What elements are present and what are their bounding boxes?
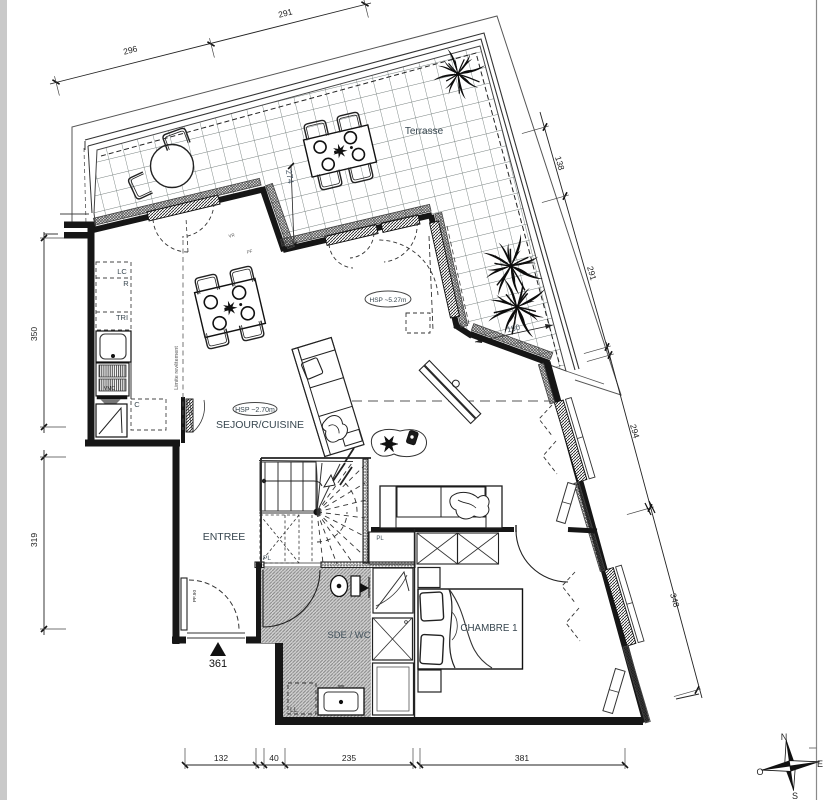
svg-text:319: 319: [29, 533, 39, 547]
svg-text:361: 361: [209, 658, 227, 670]
svg-text:Limite revêtement: Limite revêtement: [174, 346, 180, 390]
svg-text:VMC: VMC: [104, 386, 116, 392]
svg-text:LC: LC: [117, 267, 127, 276]
svg-text:PL: PL: [263, 555, 271, 562]
svg-text:Terrasse: Terrasse: [405, 126, 444, 137]
svg-text:PL: PL: [376, 536, 384, 542]
svg-text:132: 132: [214, 753, 228, 763]
svg-text:E: E: [817, 759, 823, 769]
svg-text:235: 235: [342, 753, 356, 763]
svg-text:ENTREE: ENTREE: [203, 531, 246, 543]
svg-text:O: O: [756, 767, 763, 777]
svg-text:R: R: [123, 279, 129, 288]
svg-text:HSP ~2.70m: HSP ~2.70m: [235, 407, 275, 414]
svg-text:HSP ~5.27m: HSP ~5.27m: [370, 297, 407, 304]
svg-text:TRI: TRI: [116, 313, 128, 322]
svg-text:S: S: [792, 791, 798, 800]
svg-text:PF.90: PF.90: [192, 590, 198, 603]
svg-text:CHAMBRE 1: CHAMBRE 1: [460, 623, 517, 634]
svg-text:350: 350: [29, 327, 39, 341]
svg-text:N: N: [781, 732, 788, 742]
svg-text:SDE / WC: SDE / WC: [327, 630, 370, 641]
svg-text:SEJOUR/CUISINE: SEJOUR/CUISINE: [216, 419, 304, 431]
svg-text:40: 40: [269, 753, 279, 763]
svg-text:C: C: [134, 400, 140, 409]
svg-text:LL: LL: [290, 707, 298, 714]
svg-text:381: 381: [515, 753, 529, 763]
